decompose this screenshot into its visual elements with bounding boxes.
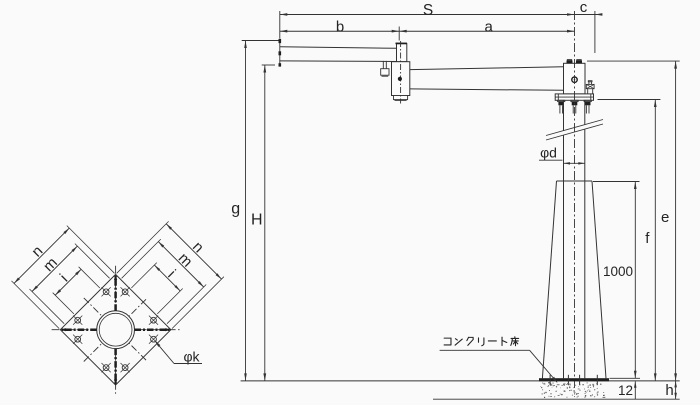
svg-text:φk: φk [183, 349, 200, 365]
svg-text:H: H [251, 212, 263, 229]
svg-text:c: c [580, 0, 588, 16]
svg-text:1000: 1000 [603, 264, 633, 279]
svg-text:h: h [665, 382, 673, 399]
svg-text:e: e [661, 209, 669, 226]
svg-text:S: S [423, 2, 433, 19]
svg-text:φd: φd [540, 145, 557, 161]
svg-text:g: g [231, 201, 240, 218]
svg-text:a: a [485, 18, 494, 35]
svg-text:12: 12 [618, 383, 633, 398]
svg-text:b: b [336, 18, 344, 35]
